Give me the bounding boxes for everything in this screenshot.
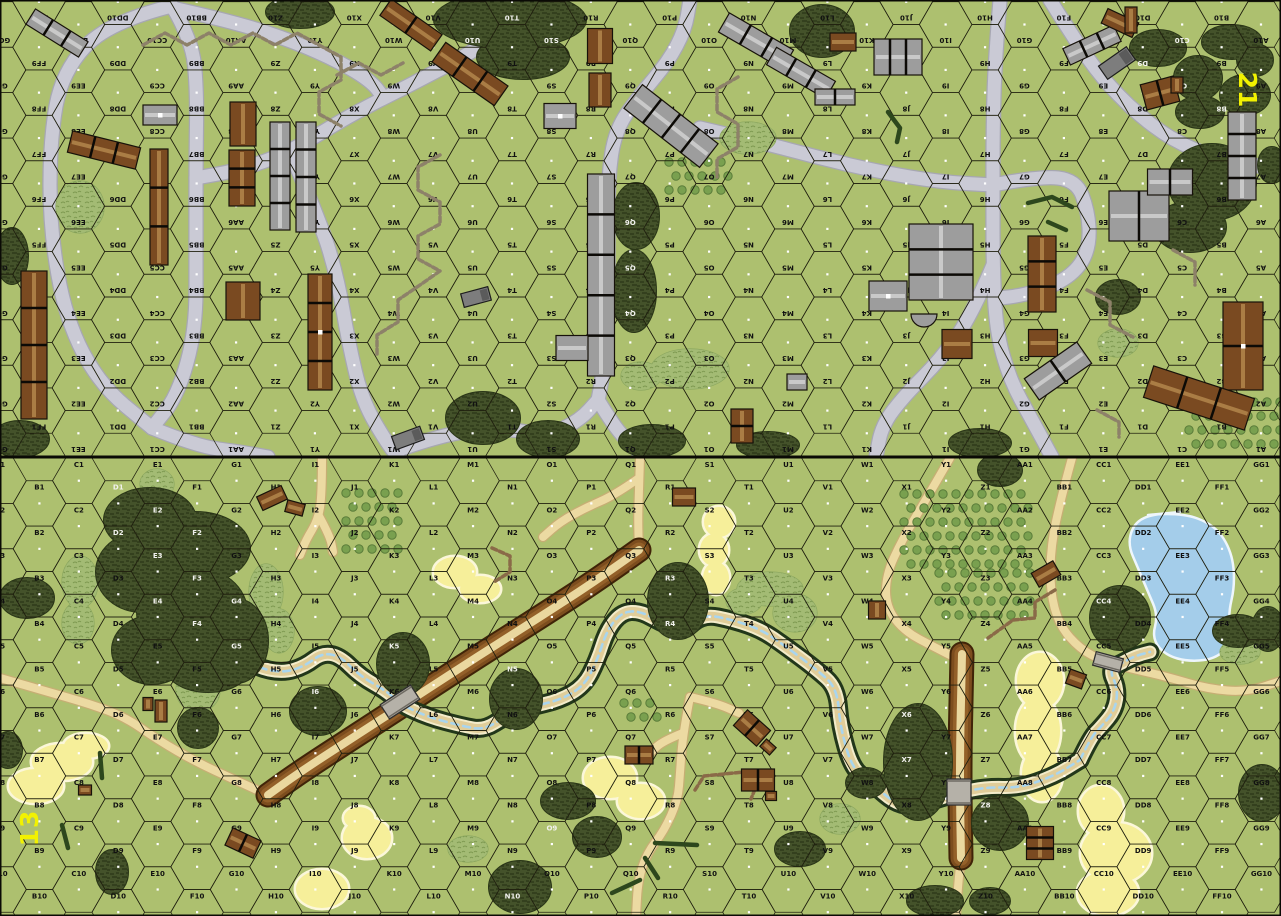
hex-center-dot bbox=[708, 480, 710, 482]
hex-label: K8 bbox=[862, 127, 872, 135]
hex-label: G6 bbox=[1019, 218, 1030, 226]
hex-center-dot bbox=[590, 409, 592, 411]
orchard-tree bbox=[998, 532, 1006, 540]
hex-label: G6 bbox=[231, 688, 242, 696]
hex-label: U10 bbox=[465, 36, 481, 44]
wooden-building bbox=[742, 769, 775, 791]
hex-center-dot bbox=[117, 364, 119, 366]
wooden-building bbox=[143, 698, 153, 711]
hex-center-dot bbox=[1023, 432, 1025, 434]
hex-label: CC9 bbox=[150, 82, 165, 90]
orchard-tree bbox=[1017, 490, 1025, 498]
hex-center-dot bbox=[1024, 888, 1026, 890]
hex-center-dot bbox=[393, 251, 395, 253]
hex-label: X3 bbox=[902, 575, 912, 583]
hex-label: DD5 bbox=[1135, 665, 1152, 673]
hex-center-dot bbox=[1182, 707, 1184, 709]
orchard-tree bbox=[961, 569, 969, 577]
hex-center-dot bbox=[196, 820, 198, 822]
hex-center-dot bbox=[1103, 752, 1105, 754]
orchard-tree bbox=[900, 546, 908, 554]
stone-building bbox=[270, 122, 290, 230]
hex-center-dot bbox=[1260, 205, 1262, 207]
hex-label: C8 bbox=[1177, 127, 1187, 135]
hex-center-dot bbox=[1181, 251, 1183, 253]
hex-center-dot bbox=[432, 319, 434, 321]
hex-center-dot bbox=[945, 432, 947, 434]
hex-label: K4 bbox=[389, 597, 399, 605]
hex-center-dot bbox=[156, 23, 158, 25]
hex-center-dot bbox=[984, 364, 986, 366]
hex-center-dot bbox=[393, 661, 395, 663]
hex-label: C9 bbox=[74, 824, 84, 832]
orchard-tree bbox=[946, 532, 954, 540]
hex-label: T3 bbox=[744, 575, 754, 583]
hex-center-dot bbox=[38, 502, 40, 504]
hex-label: T10 bbox=[742, 892, 757, 900]
hex-center-dot bbox=[1142, 911, 1144, 913]
hex-center-dot bbox=[708, 707, 710, 709]
bridge bbox=[947, 779, 971, 805]
hex-label: EE5 bbox=[71, 263, 86, 271]
hex-label: Q6 bbox=[625, 688, 636, 696]
hex-label: N9 bbox=[743, 59, 754, 67]
hex-center-dot bbox=[905, 273, 907, 275]
hex-label: Y2 bbox=[940, 506, 951, 514]
hex-center-dot bbox=[117, 729, 119, 731]
hex-label: I3 bbox=[312, 552, 320, 560]
hex-center-dot bbox=[1142, 502, 1144, 504]
hex-label: X5 bbox=[349, 241, 359, 249]
hex-label: M6 bbox=[782, 218, 794, 226]
hex-center-dot bbox=[1142, 729, 1144, 731]
hex-center-dot bbox=[1260, 888, 1262, 890]
hex-center-dot bbox=[945, 480, 947, 482]
hex-label: L7 bbox=[823, 150, 832, 158]
hex-label: BB1 bbox=[1057, 484, 1073, 492]
hex-label: Q2 bbox=[625, 400, 636, 408]
wooden-building bbox=[150, 149, 168, 265]
hex-label: T3 bbox=[507, 331, 517, 339]
hex-center-dot bbox=[117, 866, 119, 868]
hex-label: P10 bbox=[662, 14, 677, 22]
hex-center-dot bbox=[984, 684, 986, 686]
hex-label: FF10 bbox=[1212, 892, 1231, 900]
hex-center-dot bbox=[156, 341, 158, 343]
hex-center-dot bbox=[866, 707, 868, 709]
hex-label: J5 bbox=[350, 665, 359, 673]
hex-center-dot bbox=[590, 911, 592, 913]
hex-center-dot bbox=[669, 502, 671, 504]
hex-center-dot bbox=[38, 684, 40, 686]
hex-center-dot bbox=[393, 341, 395, 343]
hex-center-dot bbox=[117, 228, 119, 230]
hex-center-dot bbox=[77, 205, 79, 207]
hex-center-dot bbox=[1063, 684, 1065, 686]
hex-center-dot bbox=[354, 639, 356, 641]
hex-center-dot bbox=[827, 502, 829, 504]
hedge bbox=[100, 753, 102, 778]
hex-center-dot bbox=[629, 341, 631, 343]
hex-label: L4 bbox=[823, 286, 832, 294]
hex-center-dot bbox=[708, 570, 710, 572]
hex-label: E6 bbox=[1098, 218, 1108, 226]
hex-center-dot bbox=[984, 775, 986, 777]
hex-center-dot bbox=[984, 319, 986, 321]
hex-center-dot bbox=[1023, 251, 1025, 253]
hex-label: V1 bbox=[428, 422, 438, 430]
hex-label: EE4 bbox=[1175, 597, 1190, 605]
brush bbox=[773, 594, 817, 632]
hex-label: A8 bbox=[1256, 127, 1266, 135]
hex-center-dot bbox=[1181, 432, 1183, 434]
hex-center-dot bbox=[38, 729, 40, 731]
hex-label: T4 bbox=[507, 286, 517, 294]
hex-center-dot bbox=[1063, 137, 1065, 139]
hex-center-dot bbox=[117, 502, 119, 504]
hex-label: V3 bbox=[428, 331, 438, 339]
hex-label: U3 bbox=[783, 552, 794, 560]
hex-center-dot bbox=[708, 752, 710, 754]
hex-center-dot bbox=[905, 92, 907, 94]
wooden-building bbox=[830, 33, 856, 51]
hex-label: EE9 bbox=[71, 82, 86, 90]
hex-label: I10 bbox=[939, 36, 951, 44]
hex-label: O3 bbox=[704, 354, 715, 362]
hex-label: V1 bbox=[823, 484, 833, 492]
hex-center-dot bbox=[590, 820, 592, 822]
hex-center-dot bbox=[472, 480, 474, 482]
orchard-tree bbox=[985, 560, 993, 568]
hex-label: T1 bbox=[507, 422, 517, 430]
hex-label: H8 bbox=[271, 802, 282, 810]
hex-label: F10 bbox=[190, 892, 205, 900]
hex-label: GG2 bbox=[1253, 506, 1269, 514]
hex-center-dot bbox=[708, 341, 710, 343]
hex-label: V8 bbox=[823, 802, 833, 810]
hex-label: X6 bbox=[902, 711, 912, 719]
hex-label: P7 bbox=[665, 150, 675, 158]
orchard-tree bbox=[933, 504, 941, 512]
hex-center-dot bbox=[787, 114, 789, 116]
hex-center-dot bbox=[511, 548, 513, 550]
hex-label: D2 bbox=[1137, 377, 1148, 385]
hex-center-dot bbox=[235, 23, 237, 25]
hex-label: GG6 bbox=[1253, 688, 1269, 696]
hex-center-dot bbox=[1181, 23, 1183, 25]
hex-center-dot bbox=[432, 137, 434, 139]
hex-label: Q1 bbox=[625, 445, 636, 453]
hex-label: W3 bbox=[861, 552, 874, 560]
hex-label: L3 bbox=[429, 575, 438, 583]
hex-label: H3 bbox=[271, 575, 282, 583]
hex-label: M9 bbox=[782, 82, 794, 90]
hex-center-dot bbox=[393, 525, 395, 527]
hex-label: H9 bbox=[980, 59, 991, 67]
hex-label: F1 bbox=[192, 484, 202, 492]
hex-label: G7 bbox=[231, 734, 242, 742]
hex-center-dot bbox=[826, 228, 828, 230]
hex-label: H3 bbox=[980, 331, 991, 339]
hex-label: K1 bbox=[862, 445, 872, 453]
hex-center-dot bbox=[274, 46, 276, 48]
hex-center-dot bbox=[827, 548, 829, 550]
hex-label: O6 bbox=[704, 218, 715, 226]
hex-label: K6 bbox=[862, 218, 872, 226]
hex-center-dot bbox=[866, 570, 868, 572]
hex-label: D7 bbox=[1137, 150, 1148, 158]
hex-label: P6 bbox=[586, 711, 596, 719]
hex-center-dot bbox=[511, 820, 513, 822]
hex-center-dot bbox=[866, 752, 868, 754]
hex-label: V10 bbox=[425, 14, 440, 22]
hex-center-dot bbox=[1063, 319, 1065, 321]
hex-center-dot bbox=[38, 137, 40, 139]
hex-center-dot bbox=[669, 228, 671, 230]
hex-center-dot bbox=[1220, 46, 1222, 48]
hex-label: I6 bbox=[312, 688, 320, 696]
wooden-building bbox=[226, 282, 260, 320]
grain-field bbox=[618, 784, 664, 818]
hex-center-dot bbox=[906, 639, 908, 641]
hex-center-dot bbox=[275, 820, 277, 822]
hex-label: O10 bbox=[701, 36, 717, 44]
hex-center-dot bbox=[1260, 114, 1262, 116]
hex-label: X6 bbox=[349, 195, 359, 203]
hex-label: W5 bbox=[861, 643, 874, 651]
hex-label: N7 bbox=[743, 150, 754, 158]
orchard-tree bbox=[1231, 440, 1239, 448]
hex-center-dot bbox=[787, 843, 789, 845]
hex-center-dot bbox=[1024, 525, 1026, 527]
hex-center-dot bbox=[708, 114, 710, 116]
hex-label: C4 bbox=[74, 597, 84, 605]
hex-center-dot bbox=[354, 729, 356, 731]
hex-center-dot bbox=[669, 409, 671, 411]
hex-center-dot bbox=[984, 548, 986, 550]
hex-center-dot bbox=[708, 798, 710, 800]
orchard-tree bbox=[704, 186, 712, 194]
hex-center-dot bbox=[708, 661, 710, 663]
hex-label: K7 bbox=[389, 734, 399, 742]
hex-label: CC9 bbox=[1096, 824, 1111, 832]
hex-center-dot bbox=[708, 205, 710, 207]
game-map[interactable]: A1A2A3A4A5A6A7A8A9A10B1B2B3B4B5B6B7B8B9B… bbox=[0, 0, 1281, 916]
hex-label: M9 bbox=[467, 824, 479, 832]
hex-center-dot bbox=[827, 639, 829, 641]
hex-center-dot bbox=[1103, 570, 1105, 572]
hex-center-dot bbox=[314, 752, 316, 754]
hex-label: P10 bbox=[584, 892, 599, 900]
wooden-building bbox=[588, 29, 613, 64]
hex-label: N6 bbox=[507, 711, 518, 719]
hex-center-dot bbox=[1063, 409, 1065, 411]
hex-label: AA4 bbox=[1017, 597, 1033, 605]
hex-label: U1 bbox=[783, 461, 794, 469]
hex-label: EE4 bbox=[71, 309, 86, 317]
hex-center-dot bbox=[314, 432, 316, 434]
hex-label: J7 bbox=[350, 756, 359, 764]
hex-label: M3 bbox=[782, 354, 794, 362]
hex-label: C3 bbox=[74, 552, 84, 560]
hex-center-dot bbox=[235, 525, 237, 527]
orchard-tree bbox=[349, 503, 357, 511]
hex-label: FF1 bbox=[1215, 484, 1230, 492]
hex-center-dot bbox=[787, 752, 789, 754]
hex-label: F4 bbox=[192, 620, 202, 628]
hex-center-dot bbox=[433, 593, 435, 595]
hex-label: GG9 bbox=[1253, 824, 1269, 832]
hex-center-dot bbox=[708, 432, 710, 434]
hex-label: W2 bbox=[387, 400, 400, 408]
hex-center-dot bbox=[669, 548, 671, 550]
hex-label: Q5 bbox=[625, 263, 636, 271]
hex-label: P1 bbox=[586, 484, 596, 492]
hex-center-dot bbox=[550, 23, 552, 25]
hex-center-dot bbox=[905, 364, 907, 366]
hex-center-dot bbox=[196, 137, 198, 139]
hex-center-dot bbox=[393, 205, 395, 207]
hex-label: F2 bbox=[192, 529, 202, 537]
hex-center-dot bbox=[433, 684, 435, 686]
wooden-building bbox=[1027, 827, 1054, 860]
hex-label: Y5 bbox=[310, 263, 321, 271]
hex-center-dot bbox=[866, 387, 868, 389]
hex-label: R3 bbox=[665, 575, 675, 583]
woods bbox=[0, 578, 54, 618]
hex-center-dot bbox=[235, 432, 237, 434]
hex-label: V3 bbox=[823, 575, 833, 583]
hex-center-dot bbox=[354, 911, 356, 913]
hex-label: Z3 bbox=[981, 575, 991, 583]
hex-label: S7 bbox=[705, 734, 715, 742]
hex-label: M7 bbox=[467, 734, 479, 742]
hex-label: GG8 bbox=[1253, 779, 1269, 787]
hex-label: CC2 bbox=[150, 400, 165, 408]
hex-label: J1 bbox=[350, 484, 359, 492]
hex-center-dot bbox=[472, 888, 474, 890]
hex-center-dot bbox=[156, 387, 158, 389]
hex-center-dot bbox=[826, 137, 828, 139]
hex-label: F7 bbox=[192, 756, 202, 764]
hex-label: Z1 bbox=[981, 484, 991, 492]
hex-label: F7 bbox=[1059, 150, 1069, 158]
hex-label: J2 bbox=[902, 377, 911, 385]
orchard-tree bbox=[1218, 440, 1226, 448]
hex-center-dot bbox=[157, 843, 159, 845]
hex-label: R10 bbox=[583, 14, 598, 22]
brush bbox=[448, 836, 488, 862]
hex-center-dot bbox=[590, 137, 592, 139]
hex-center-dot bbox=[984, 866, 986, 868]
hex-label: S3 bbox=[705, 552, 715, 560]
hex-label: C1 bbox=[74, 461, 84, 469]
orchard-tree bbox=[1017, 518, 1025, 526]
hex-center-dot bbox=[38, 548, 40, 550]
hex-label: M5 bbox=[467, 643, 479, 651]
hex-center-dot bbox=[235, 341, 237, 343]
hex-center-dot bbox=[472, 570, 474, 572]
hex-label: V7 bbox=[823, 756, 833, 764]
hex-label: Q10 bbox=[622, 36, 638, 44]
hex-label: BB4 bbox=[1057, 620, 1073, 628]
hex-label: B1 bbox=[34, 484, 44, 492]
orchard-tree bbox=[935, 569, 943, 577]
hex-label: T2 bbox=[744, 529, 754, 537]
hex-center-dot bbox=[984, 228, 986, 230]
hex-label: D7 bbox=[113, 756, 124, 764]
hex-label: D1 bbox=[113, 484, 124, 492]
orchard-tree bbox=[1000, 597, 1008, 605]
hex-center-dot bbox=[314, 707, 316, 709]
hex-center-dot bbox=[550, 160, 552, 162]
orchard-tree bbox=[952, 518, 960, 526]
wooden-building bbox=[1223, 302, 1263, 390]
hex-label: Y4 bbox=[940, 597, 951, 605]
map-screen: A1A2A3A4A5A6A7A8A9A10B1B2B3B4B5B6B7B8B9B… bbox=[0, 0, 1281, 916]
hex-center-dot bbox=[1182, 570, 1184, 572]
hex-label: EE10 bbox=[1173, 870, 1192, 878]
hex-label: E6 bbox=[153, 688, 163, 696]
hex-center-dot bbox=[1221, 911, 1223, 913]
hex-center-dot bbox=[984, 820, 986, 822]
hex-center-dot bbox=[353, 182, 355, 184]
hex-label: H10 bbox=[977, 14, 993, 22]
hex-label: X4 bbox=[902, 620, 912, 628]
hex-label: EE6 bbox=[71, 218, 86, 226]
hex-center-dot bbox=[906, 729, 908, 731]
hex-label: G9 bbox=[1019, 82, 1030, 90]
hex-label: N4 bbox=[743, 286, 754, 294]
hex-label: EE3 bbox=[71, 354, 86, 362]
hex-center-dot bbox=[748, 684, 750, 686]
hex-label: S5 bbox=[546, 263, 556, 271]
orchard-tree bbox=[900, 518, 908, 526]
woods bbox=[907, 886, 963, 916]
hex-label: AA2 bbox=[228, 400, 244, 408]
hex-label: Z10 bbox=[978, 892, 993, 900]
hex-label: O8 bbox=[546, 779, 557, 787]
hex-label: X1 bbox=[349, 422, 359, 430]
hex-center-dot bbox=[157, 525, 159, 527]
hex-center-dot bbox=[78, 798, 80, 800]
hex-center-dot bbox=[353, 364, 355, 366]
hex-center-dot bbox=[669, 684, 671, 686]
hex-center-dot bbox=[196, 182, 198, 184]
hex-label: E1 bbox=[153, 461, 163, 469]
hex-center-dot bbox=[945, 707, 947, 709]
hex-center-dot bbox=[708, 251, 710, 253]
hex-label: W6 bbox=[387, 218, 400, 226]
hex-label: V5 bbox=[823, 665, 833, 673]
hex-center-dot bbox=[77, 23, 79, 25]
hex-center-dot bbox=[708, 888, 710, 890]
hex-center-dot bbox=[866, 525, 868, 527]
hex-label: DD6 bbox=[1135, 711, 1152, 719]
hex-label: BB2 bbox=[1057, 529, 1073, 537]
hex-center-dot bbox=[708, 23, 710, 25]
hex-center-dot bbox=[827, 684, 829, 686]
hex-label: G4 bbox=[231, 597, 242, 605]
hex-center-dot bbox=[196, 639, 198, 641]
hex-center-dot bbox=[314, 888, 316, 890]
hex-center-dot bbox=[275, 911, 277, 913]
hex-label: L9 bbox=[823, 59, 832, 67]
hex-label: Q6 bbox=[625, 218, 636, 226]
hex-label: J3 bbox=[350, 575, 359, 583]
hex-center-dot bbox=[196, 228, 198, 230]
hex-label: M8 bbox=[782, 127, 794, 135]
